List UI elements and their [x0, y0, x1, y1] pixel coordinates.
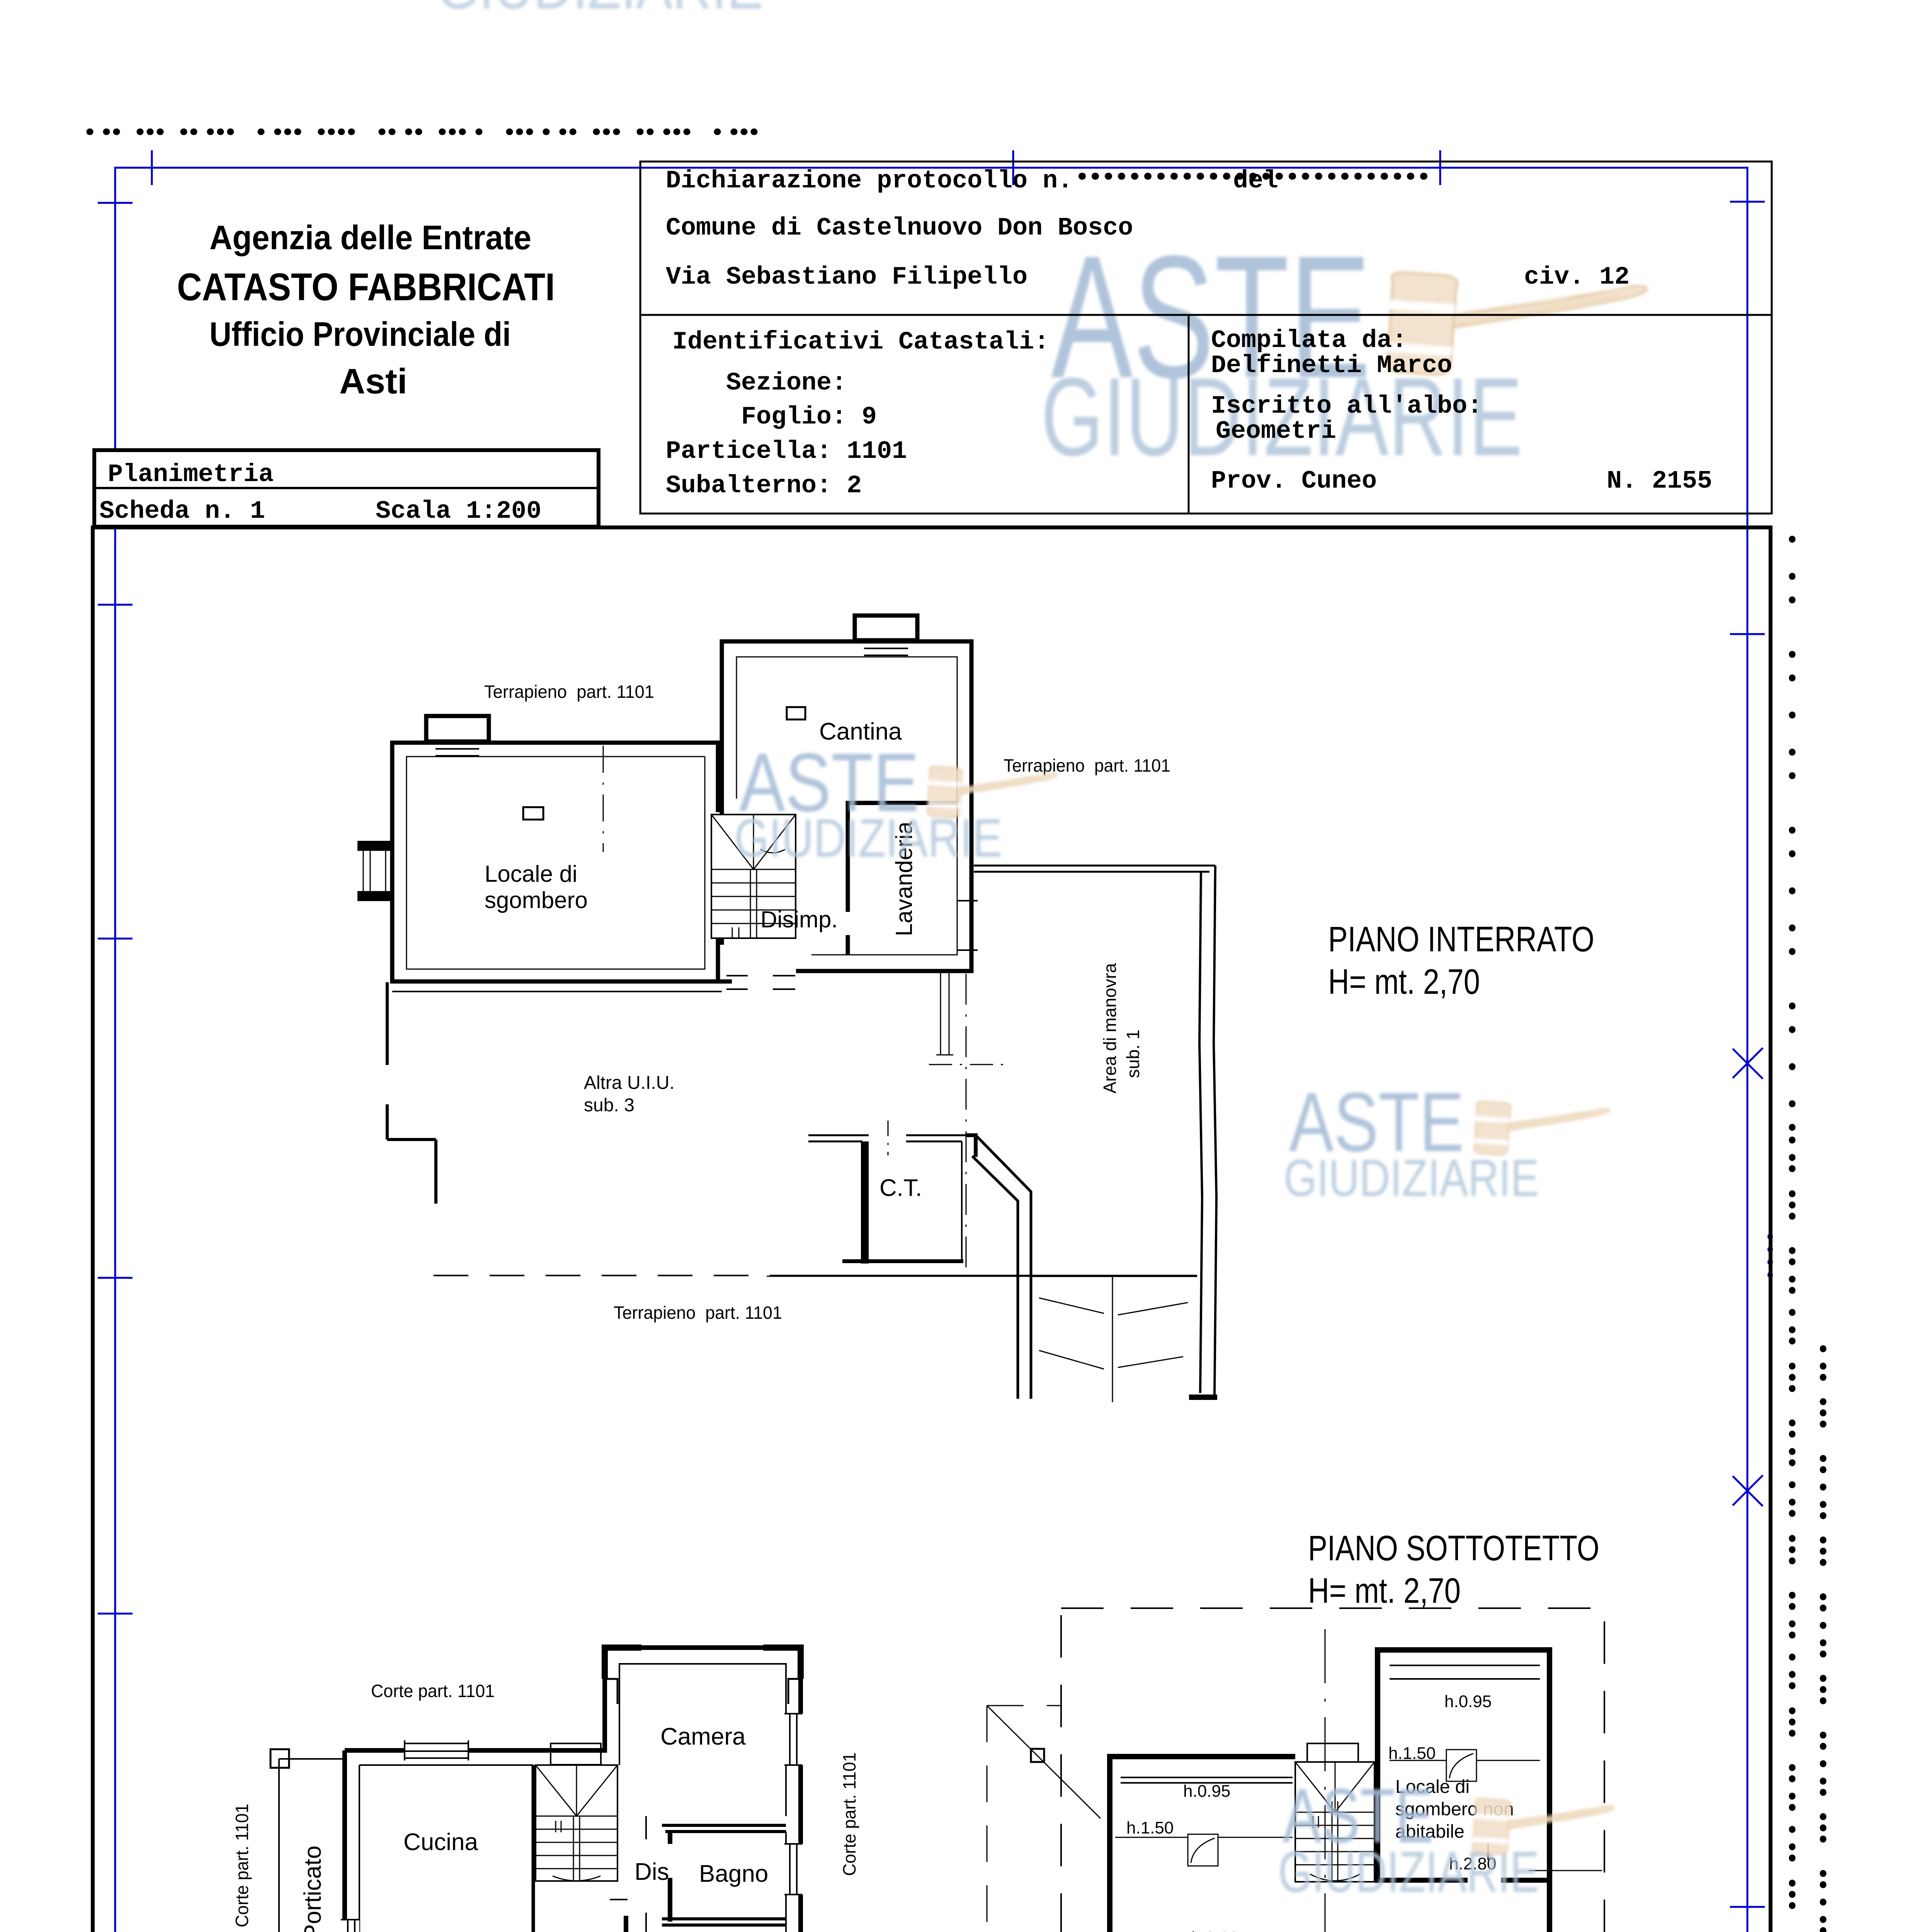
svg-text:PIANO SOTTOTETTO: PIANO SOTTOTETTO — [1308, 1529, 1599, 1568]
svg-text:Particella: 1101: Particella: 1101 — [666, 437, 907, 466]
svg-text:Comune di Castelnuovo Don Bosc: Comune di Castelnuovo Don Bosco — [666, 214, 1133, 242]
svg-text:h.0.95: h.0.95 — [1444, 1692, 1492, 1711]
svg-text:Scala 1:200: Scala 1:200 — [376, 497, 541, 526]
svg-text:Disimp.: Disimp. — [760, 906, 838, 932]
svg-text:Ufficio Provinciale di: Ufficio Provinciale di — [209, 315, 511, 353]
svg-text:Prov. Cuneo: Prov. Cuneo — [1211, 467, 1377, 495]
svg-text:CATASTO FABBRICATI: CATASTO FABBRICATI — [177, 265, 555, 309]
svg-text:C.T.: C.T. — [879, 1175, 922, 1201]
svg-text:Iscritto all'albo:: Iscritto all'albo: — [1211, 392, 1482, 420]
svg-text:Planimetria: Planimetria — [108, 460, 274, 489]
svg-text:civ. 12: civ. 12 — [1524, 263, 1630, 291]
svg-text:PIANO INTERRATO: PIANO INTERRATO — [1328, 920, 1594, 959]
svg-text:h.2.80: h.2.80 — [1191, 1929, 1238, 1932]
svg-text:Corte part. 1101: Corte part. 1101 — [839, 1752, 859, 1876]
svg-text:GIUDIZIARIE: GIUDIZIARIE — [437, 0, 763, 23]
svg-text:h.1.50: h.1.50 — [1126, 1818, 1174, 1837]
svg-text:sub. 3: sub. 3 — [584, 1095, 634, 1116]
svg-text:Dis: Dis — [634, 1859, 669, 1885]
svg-text:Sezione:: Sezione: — [726, 369, 847, 397]
svg-text:Corte part. 1101: Corte part. 1101 — [232, 1804, 252, 1927]
svg-text:Agenzia delle Entrate: Agenzia delle Entrate — [209, 218, 531, 257]
svg-text:Terrapieno part. 1101: Terrapieno part. 1101 — [614, 1303, 782, 1323]
svg-text:Identificativi Catastali:: Identificativi Catastali: — [672, 328, 1049, 356]
svg-text:Area di manovra: Area di manovra — [1100, 963, 1120, 1094]
svg-text:Geometri: Geometri — [1216, 417, 1336, 446]
svg-text:sub. 1: sub. 1 — [1123, 1030, 1143, 1078]
svg-text:H= mt. 2,70: H= mt. 2,70 — [1328, 962, 1480, 1002]
svg-text:h.0.95: h.0.95 — [1183, 1782, 1230, 1801]
svg-text:Compilata da:: Compilata da: — [1211, 326, 1407, 355]
svg-text:Foglio: 9: Foglio: 9 — [741, 403, 877, 431]
svg-text:Cucina: Cucina — [403, 1829, 478, 1855]
svg-text:Bagno: Bagno — [699, 1861, 768, 1887]
svg-text:Scheda n. 1: Scheda n. 1 — [99, 497, 265, 526]
svg-text:Altra U.I.U.: Altra U.I.U. — [584, 1073, 675, 1093]
svg-text:Asti: Asti — [339, 362, 407, 401]
svg-text:H= mt. 2,70: H= mt. 2,70 — [1308, 1571, 1461, 1611]
svg-text:Corte part. 1101: Corte part. 1101 — [371, 1681, 495, 1701]
svg-text:GIUDIZIARIE: GIUDIZIARIE — [1284, 1149, 1539, 1207]
svg-text:sgombero: sgombero — [485, 887, 588, 913]
svg-text:GIUDIZIARIE: GIUDIZIARIE — [734, 808, 1002, 868]
svg-text:Porticato: Porticato — [299, 1845, 326, 1932]
svg-text:del: del — [1233, 167, 1278, 195]
svg-text:Terrapieno part. 1101: Terrapieno part. 1101 — [484, 682, 654, 702]
svg-text:N. 2155: N. 2155 — [1607, 467, 1712, 495]
svg-text:Camera: Camera — [660, 1723, 746, 1750]
svg-text:Subalterno: 2: Subalterno: 2 — [666, 471, 862, 500]
svg-text:Via Sebastiano Filipello: Via Sebastiano Filipello — [666, 263, 1027, 291]
svg-text:Dichiarazione protocollo n.: Dichiarazione protocollo n. — [666, 167, 1073, 195]
svg-text:Delfinetti Marco: Delfinetti Marco — [1211, 351, 1452, 380]
svg-text:Locale di: Locale di — [485, 861, 577, 887]
svg-text:h.1.50: h.1.50 — [1388, 1744, 1436, 1763]
svg-text:Terrapieno part. 1101: Terrapieno part. 1101 — [1004, 755, 1170, 776]
